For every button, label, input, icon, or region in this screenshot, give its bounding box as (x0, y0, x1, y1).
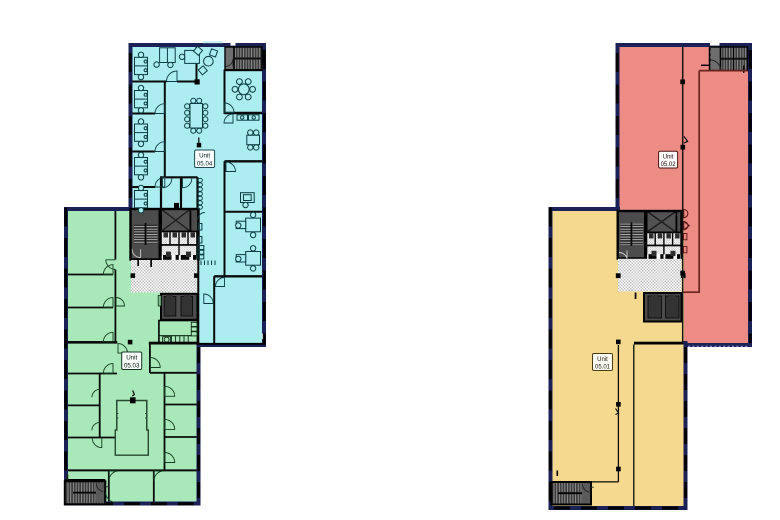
svg-text:Unit: Unit (126, 355, 137, 362)
svg-text:Unit: Unit (663, 154, 674, 160)
svg-text:05.04: 05.04 (197, 160, 213, 167)
svg-text:05.03: 05.03 (124, 362, 140, 369)
svg-text:Unit: Unit (597, 357, 608, 363)
svg-text:05.02: 05.02 (661, 162, 677, 168)
svg-text:Unit: Unit (199, 153, 210, 160)
svg-text:05.01: 05.01 (595, 364, 611, 370)
